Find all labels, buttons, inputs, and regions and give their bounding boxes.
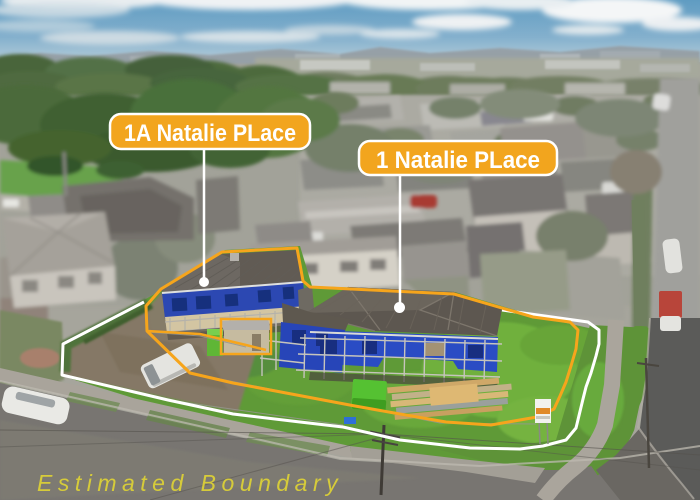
svg-text:Estimated Boundary: Estimated Boundary — [37, 470, 343, 496]
svg-text:1A Natalie PLace: 1A Natalie PLace — [124, 120, 296, 147]
svg-text:1 Natalie PLace: 1 Natalie PLace — [376, 147, 540, 174]
